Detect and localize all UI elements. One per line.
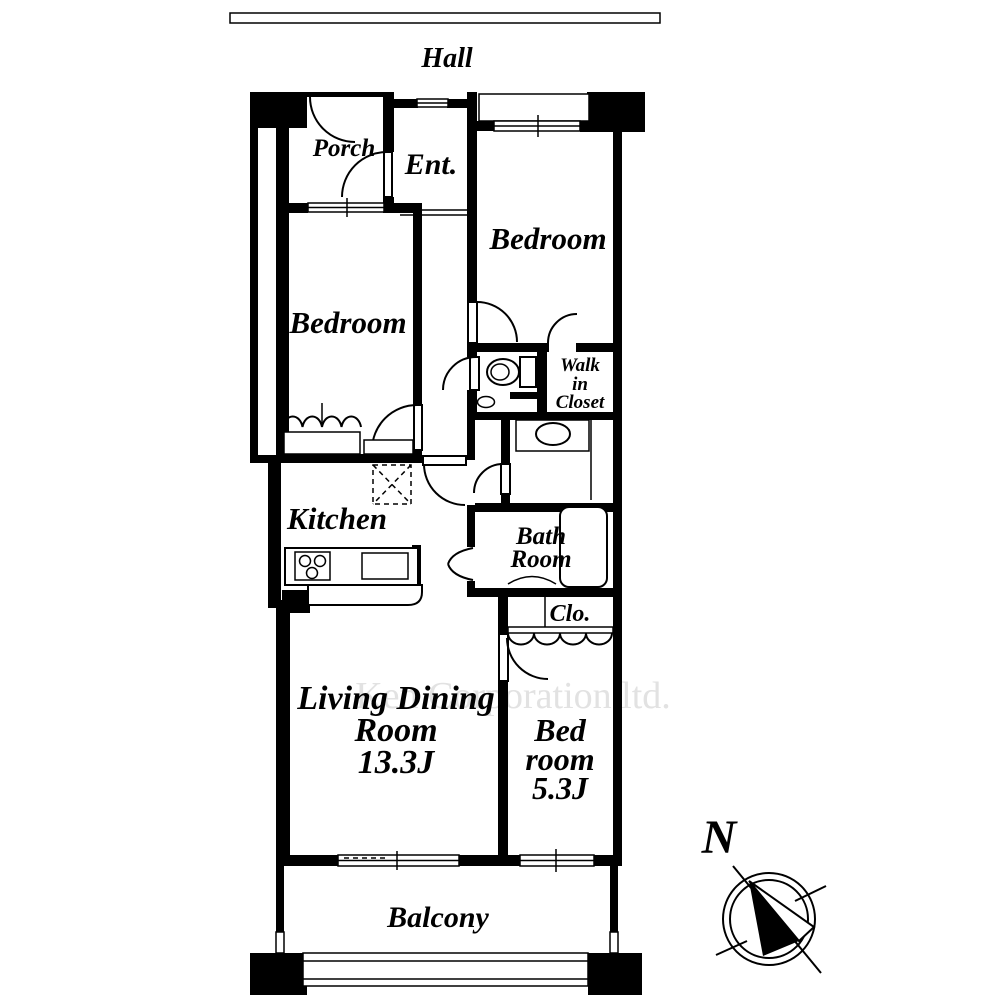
- room-label-porch: Porch: [312, 135, 376, 162]
- kitchen-return-counter: [308, 585, 422, 605]
- bedroom-br-closet-doors: [508, 633, 612, 645]
- toilet-door-leaf: [470, 357, 479, 390]
- porch-ent-door-leaf: [384, 152, 392, 197]
- room-label-balcony: Balcony: [386, 901, 489, 934]
- balcony-railing: [276, 932, 618, 986]
- room-label-bedroom-br-3: 5.3J: [532, 770, 589, 806]
- room-label-bedroom-left: Bedroom: [288, 305, 406, 340]
- hall-walkway-edge: [230, 13, 660, 23]
- room-label-hall: Hall: [420, 43, 473, 74]
- bedroom-top-window-recess: [479, 94, 589, 121]
- kitchen-sink-icon: [362, 553, 408, 579]
- room-label-ldk-3: 13.3J: [358, 744, 436, 781]
- washroom-fixtures: [516, 420, 591, 500]
- washbasin-icon: [536, 423, 570, 445]
- room-label-closet: Clo.: [550, 601, 591, 627]
- room-label-bedroom-top: Bedroom: [488, 221, 606, 256]
- room-label-entrance: Ent.: [404, 148, 458, 181]
- bedroom-left-door-leaf: [414, 405, 422, 450]
- compass-north-label: N: [701, 811, 739, 864]
- closet-rail: [508, 627, 613, 633]
- room-label-kitchen: Kitchen: [286, 501, 387, 536]
- bedroom-top-door-arc: [477, 302, 517, 342]
- shower-curve: [508, 577, 556, 585]
- compass-icon: N: [701, 811, 826, 973]
- toilet-icon: [478, 357, 537, 408]
- floor-plan-canvas: Ken Corporation ltd.: [0, 0, 1000, 1000]
- wic-door-arc: [548, 314, 577, 343]
- floor-plan-page: Ken Corporation ltd.: [0, 0, 1000, 1000]
- bath-bifold-door-arc: [448, 548, 473, 580]
- kitchen-door-leaf: [423, 456, 466, 465]
- bedroom-top-door-leaf: [468, 302, 477, 343]
- refrigerator-icon: [373, 465, 411, 504]
- room-label-wic-3: Closet: [556, 392, 605, 413]
- toilet-basin-icon: [478, 397, 495, 408]
- room-labels: Hall Porch Ent. Bedroom Bedroom Walk in …: [286, 43, 607, 934]
- washroom-door-leaf: [501, 464, 510, 494]
- kitchen-door-arc: [424, 464, 465, 505]
- washroom-door-arc: [474, 464, 503, 493]
- room-label-bath-2: Room: [509, 546, 571, 573]
- room-label-wic-1: Walk: [560, 355, 600, 376]
